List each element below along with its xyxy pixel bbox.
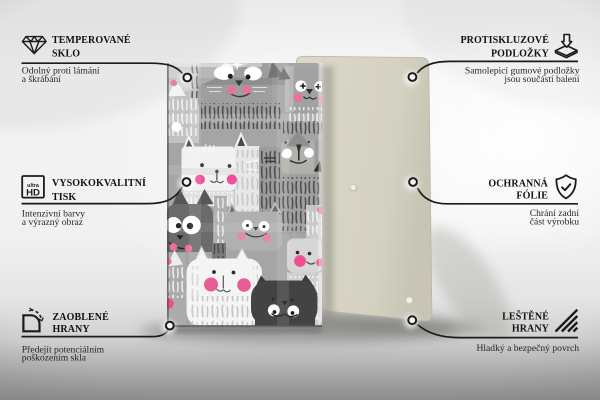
svg-text:HRANY: HRANY (53, 324, 91, 335)
svg-text:LEŠTĚNÉ: LEŠTĚNÉ (502, 309, 549, 322)
svg-text:PODLOŽKY: PODLOŽKY (491, 48, 550, 60)
svg-text:a výrazný obraz: a výrazný obraz (22, 217, 83, 228)
svg-text:OCHRANNÁ: OCHRANNÁ (488, 177, 548, 189)
svg-text:ZAOBLENÉ: ZAOBLENÉ (53, 311, 110, 323)
svg-text:a škrábání: a škrábání (22, 74, 61, 85)
svg-text:Hladký a bezpečný povrch: Hladký a bezpečný povrch (476, 343, 579, 354)
svg-text:FÓLIE: FÓLIE (516, 189, 548, 201)
svg-text:HRANY: HRANY (512, 324, 550, 335)
svg-text:VYSOKOKVALITNÍ: VYSOKOKVALITNÍ (52, 177, 146, 189)
svg-text:poškozením skla: poškozením skla (22, 353, 87, 364)
svg-text:PROTISKLUZOVÉ: PROTISKLUZOVÉ (460, 34, 549, 46)
svg-text:část výrobku: část výrobku (530, 217, 579, 228)
svg-text:SKLO: SKLO (52, 48, 80, 59)
svg-text:HD: HD (26, 187, 40, 198)
svg-text:jsou součástí balení: jsou součástí balení (503, 74, 579, 85)
svg-text:TEMPEROVANÉ: TEMPEROVANÉ (52, 34, 131, 46)
svg-text:TISK: TISK (52, 192, 76, 203)
